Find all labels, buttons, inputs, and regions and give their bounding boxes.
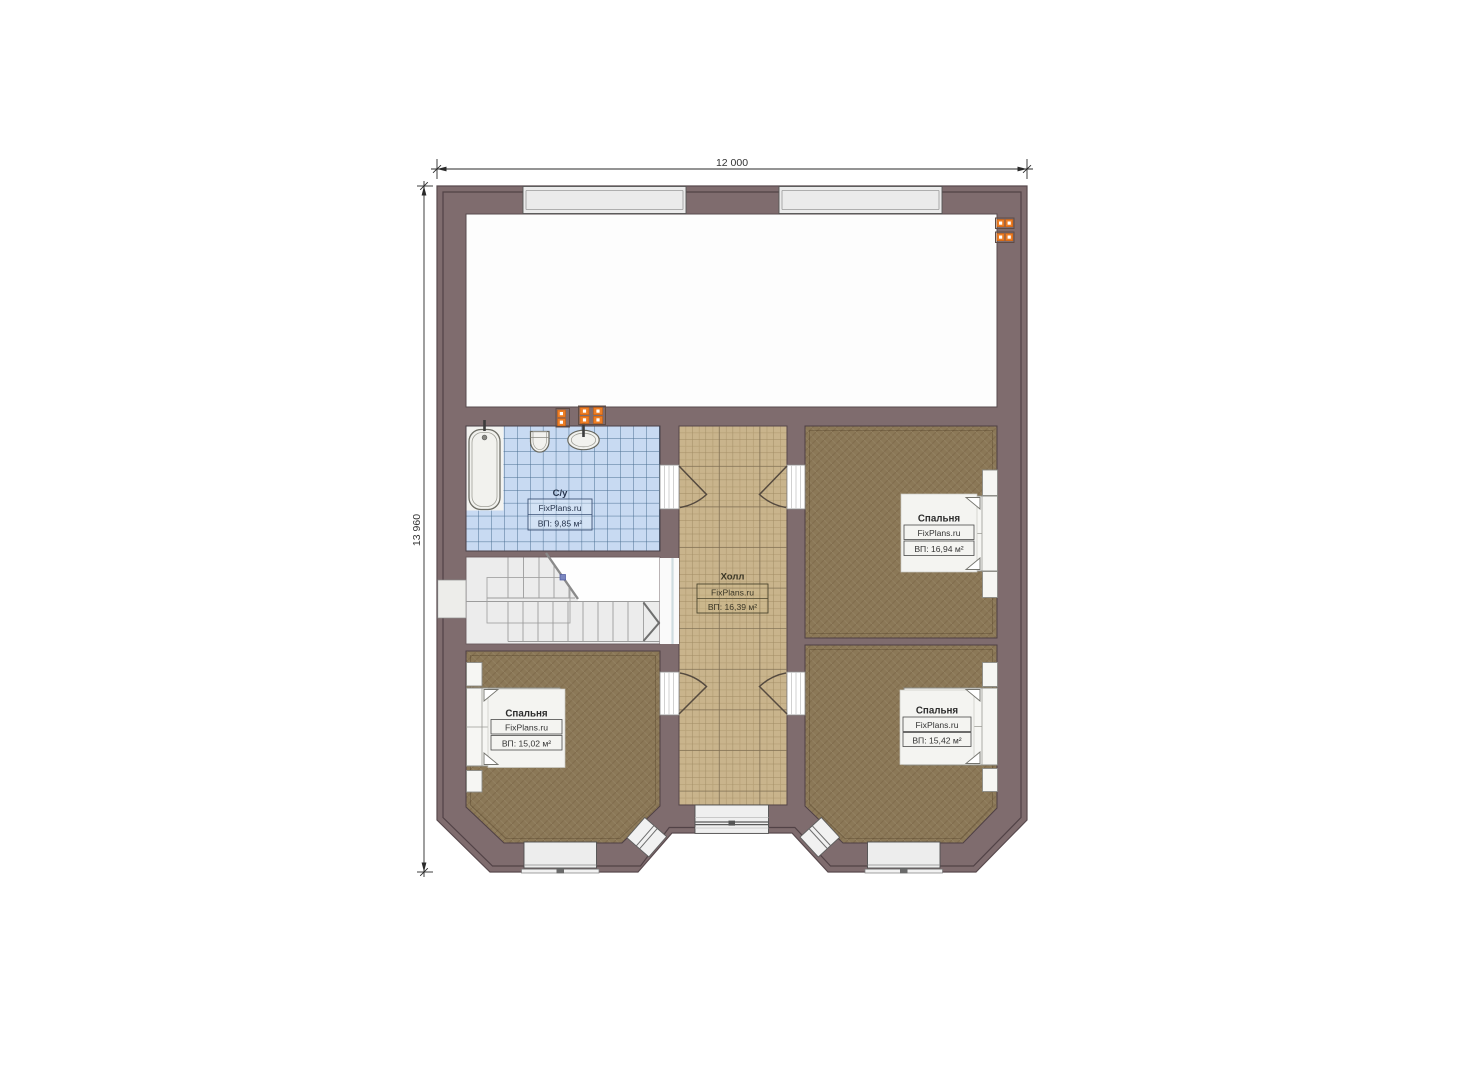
svg-text:FixPlans.ru: FixPlans.ru: [916, 720, 959, 730]
svg-text:FixPlans.ru: FixPlans.ru: [505, 723, 548, 733]
svg-text:FixPlans.ru: FixPlans.ru: [711, 588, 754, 598]
svg-text:12 000: 12 000: [716, 157, 748, 169]
svg-text:С/у: С/у: [553, 488, 569, 499]
svg-text:ВП: 15,42 м²: ВП: 15,42 м²: [912, 736, 961, 746]
svg-text:ВП: 15,02 м²: ВП: 15,02 м²: [502, 739, 551, 749]
svg-text:Холл: Холл: [721, 572, 745, 583]
svg-text:ВП: 9,85 м²: ВП: 9,85 м²: [538, 519, 583, 529]
svg-text:Спальня: Спальня: [505, 709, 548, 720]
svg-text:13 960: 13 960: [411, 514, 423, 546]
svg-text:Спальня: Спальня: [918, 514, 961, 525]
svg-text:ВП: 16,94 м²: ВП: 16,94 м²: [914, 544, 963, 554]
svg-text:Спальня: Спальня: [916, 706, 959, 717]
svg-text:FixPlans.ru: FixPlans.ru: [918, 528, 961, 538]
svg-text:FixPlans.ru: FixPlans.ru: [539, 503, 582, 513]
svg-text:ВП: 16,39 м²: ВП: 16,39 м²: [708, 602, 757, 612]
